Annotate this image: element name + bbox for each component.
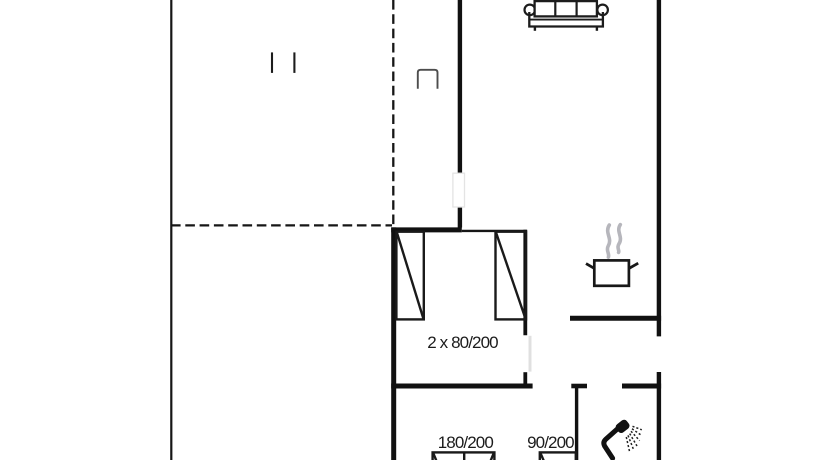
svg-text:90/200: 90/200 xyxy=(527,433,574,452)
svg-text:2 x 80/200: 2 x 80/200 xyxy=(427,333,498,352)
svg-text:180/200: 180/200 xyxy=(438,433,494,452)
